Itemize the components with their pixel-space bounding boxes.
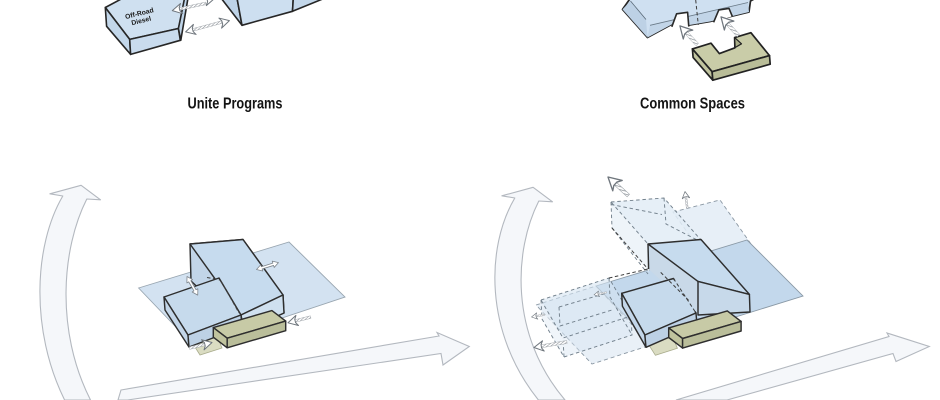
svg-text:Common Spaces: Common Spaces (640, 96, 745, 113)
svg-text:Unite Programs: Unite Programs (188, 96, 283, 113)
